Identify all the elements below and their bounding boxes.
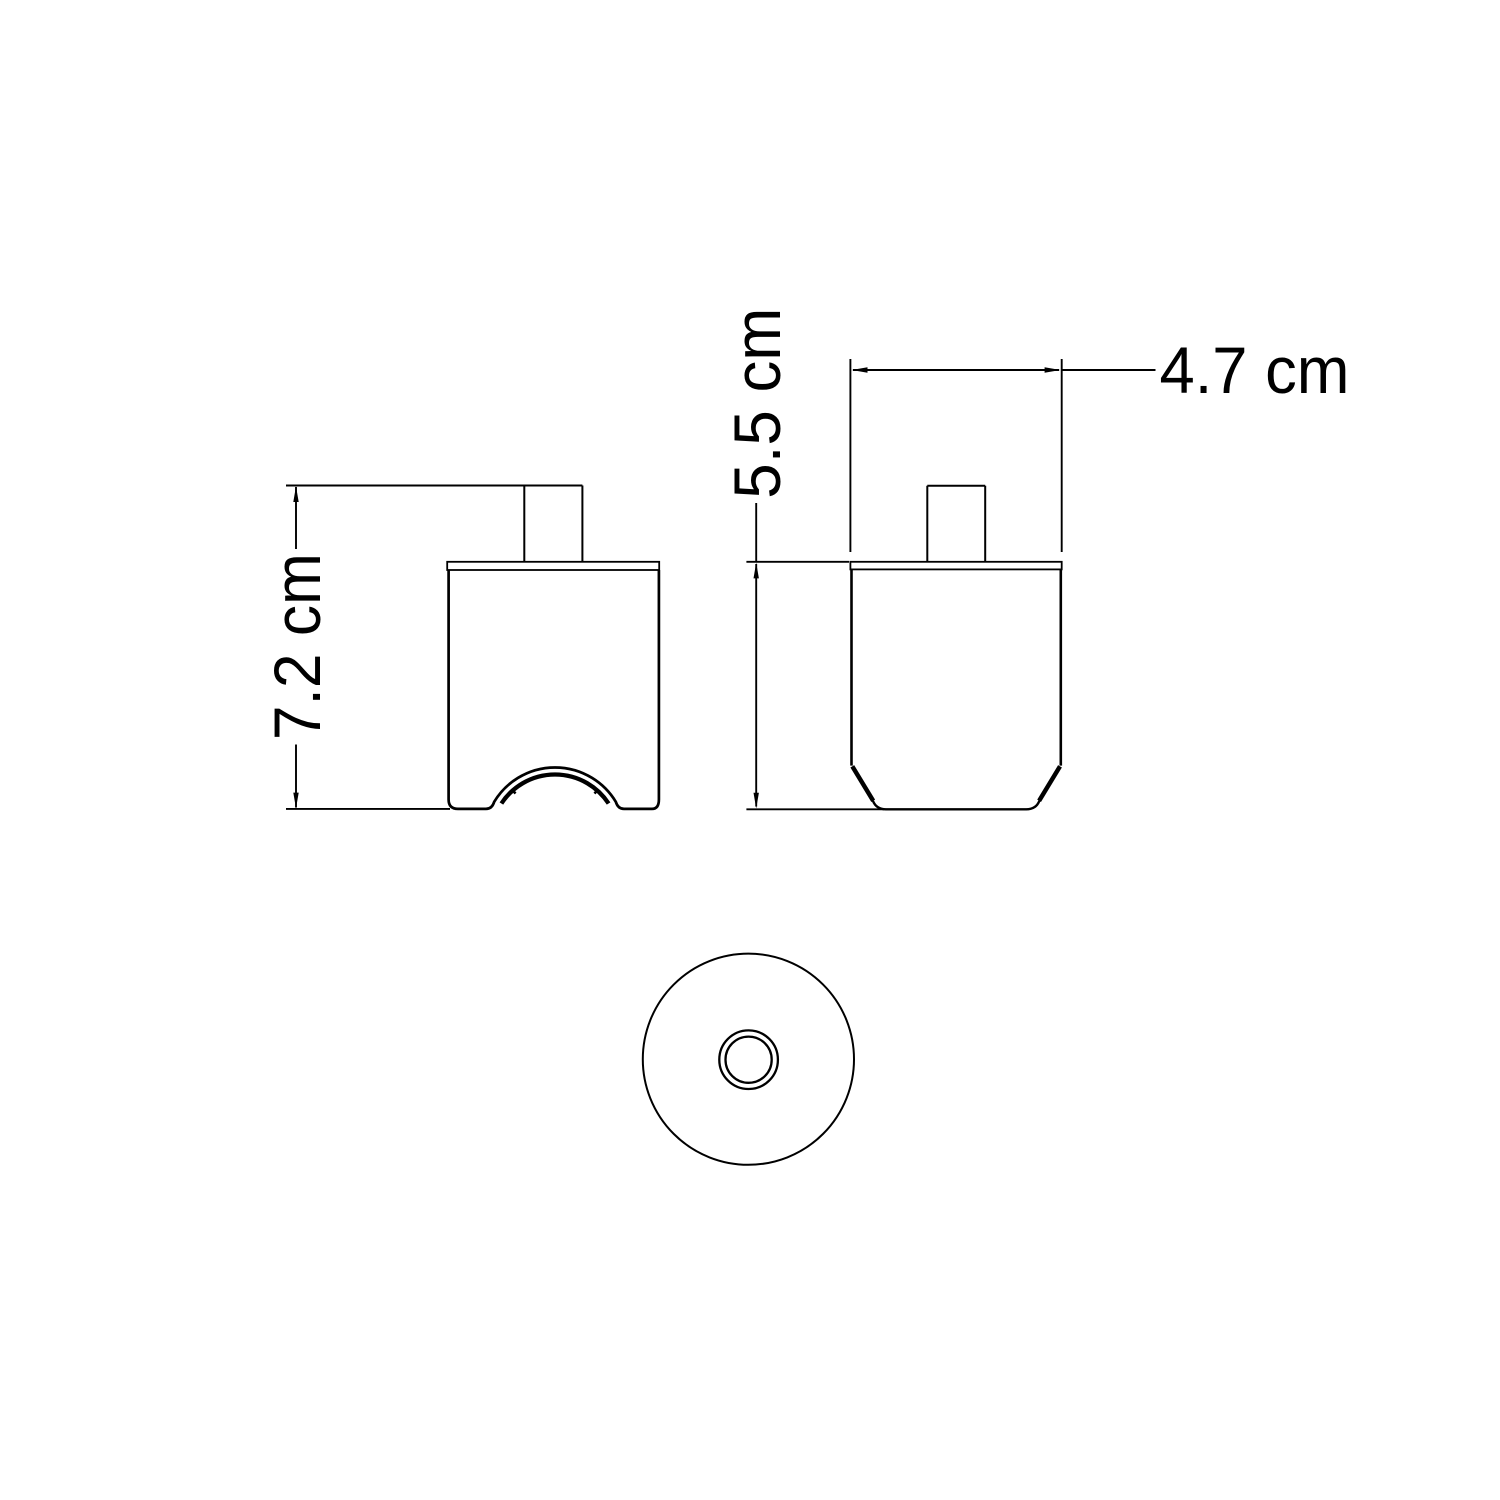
svg-text:7.2 cm: 7.2 cm xyxy=(260,553,334,740)
svg-text:4.7 cm: 4.7 cm xyxy=(1160,333,1350,407)
svg-text:5.5 cm: 5.5 cm xyxy=(720,308,794,499)
